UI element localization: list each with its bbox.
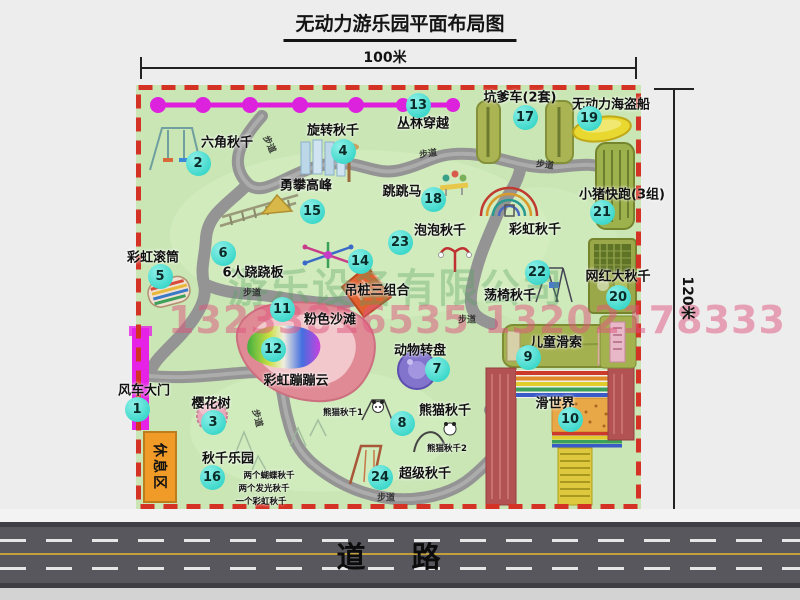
badge-16: 16 (200, 465, 225, 490)
sub-label-1: 熊猫秋千2 (427, 442, 467, 454)
badge-18: 18 (421, 187, 446, 212)
height-dimension-label: 120米 (678, 276, 698, 319)
sub-label-0: 熊猫秋千1 (323, 406, 363, 418)
footpath-label-1: 步道 (418, 145, 438, 160)
label-17: 坑爹车(2套) (484, 87, 557, 106)
badge-11: 11 (270, 297, 295, 322)
badge-9: 9 (516, 345, 541, 370)
footpath-label-4: 步道 (458, 313, 476, 326)
label-2: 六角秋千 (201, 132, 253, 151)
label-5: 彩虹滚筒 (127, 247, 179, 266)
label-9: 儿童滑索 (530, 332, 582, 351)
badge-12: 12 (261, 337, 286, 362)
badge-7: 7 (425, 357, 450, 382)
label-20: 网红大秋千 (585, 266, 650, 285)
badge-6: 6 (211, 241, 236, 266)
page-title: 无动力游乐园平面布局图 (283, 9, 516, 42)
label-3: 樱花树 (191, 393, 230, 412)
label-4: 旋转秋千 (307, 120, 359, 139)
label-7: 动物转盘 (394, 340, 446, 359)
rest-area-box: 休息区 (143, 431, 177, 503)
label-1: 风车大门 (118, 380, 170, 399)
poster-stage: 无动力游乐园平面布局图 (0, 0, 800, 600)
sub-label-2: 两个蝴蝶秋千 (243, 469, 294, 481)
label-18: 跳跳马 (382, 181, 421, 200)
footpath-label-2: 步道 (535, 156, 555, 171)
badge-24: 24 (368, 465, 393, 490)
width-dimension-line (140, 67, 637, 69)
label-22: 荡椅秋千 (484, 285, 536, 304)
label-24: 超级秋千 (399, 463, 451, 482)
footpath-label-3: 步道 (243, 286, 261, 299)
badge-22: 22 (525, 260, 550, 285)
badge-10: 10 (558, 407, 583, 432)
road-bottom-shoulder (0, 588, 800, 600)
badge-20: 20 (606, 285, 631, 310)
road-label: 道路 (313, 534, 486, 576)
label-16: 秋千乐园 (202, 448, 254, 467)
sub-label-4: 一个彩虹秋千 (235, 495, 286, 507)
badge-13: 13 (406, 93, 431, 118)
label-11: 粉色沙滩 (304, 309, 356, 328)
rainbow-swing-label: 彩虹秋千 (509, 219, 561, 238)
road-shoulder (0, 509, 800, 522)
road: 道路 (0, 522, 800, 588)
badge-21: 21 (590, 200, 615, 225)
label-8: 熊猫秋千 (419, 400, 471, 419)
footpath-label-6: 步道 (377, 491, 395, 504)
width-dimension-label: 100米 (363, 47, 406, 67)
label-12: 彩虹蹦蹦云 (263, 370, 328, 389)
sub-label-3: 两个发光秋千 (238, 482, 289, 494)
badge-8: 8 (390, 411, 415, 436)
label-14: 吊桩三组合 (344, 280, 409, 299)
badge-14: 14 (348, 249, 373, 274)
badge-4: 4 (331, 139, 356, 164)
badge-1: 1 (125, 397, 150, 422)
label-21: 小猪快跑(3组) (579, 184, 665, 203)
badge-3: 3 (201, 410, 226, 435)
badge-15: 15 (300, 199, 325, 224)
label-6: 6人跷跷板 (222, 262, 283, 281)
height-dimension-line (673, 88, 675, 512)
badge-19: 19 (577, 106, 602, 131)
badge-2: 2 (186, 151, 211, 176)
badge-5: 5 (148, 264, 173, 289)
badge-23: 23 (388, 230, 413, 255)
badge-17: 17 (513, 105, 538, 130)
label-23: 泡泡秋千 (414, 220, 466, 239)
label-15: 勇攀高峰 (280, 175, 332, 194)
rest-area-label: 休息区 (150, 443, 170, 491)
